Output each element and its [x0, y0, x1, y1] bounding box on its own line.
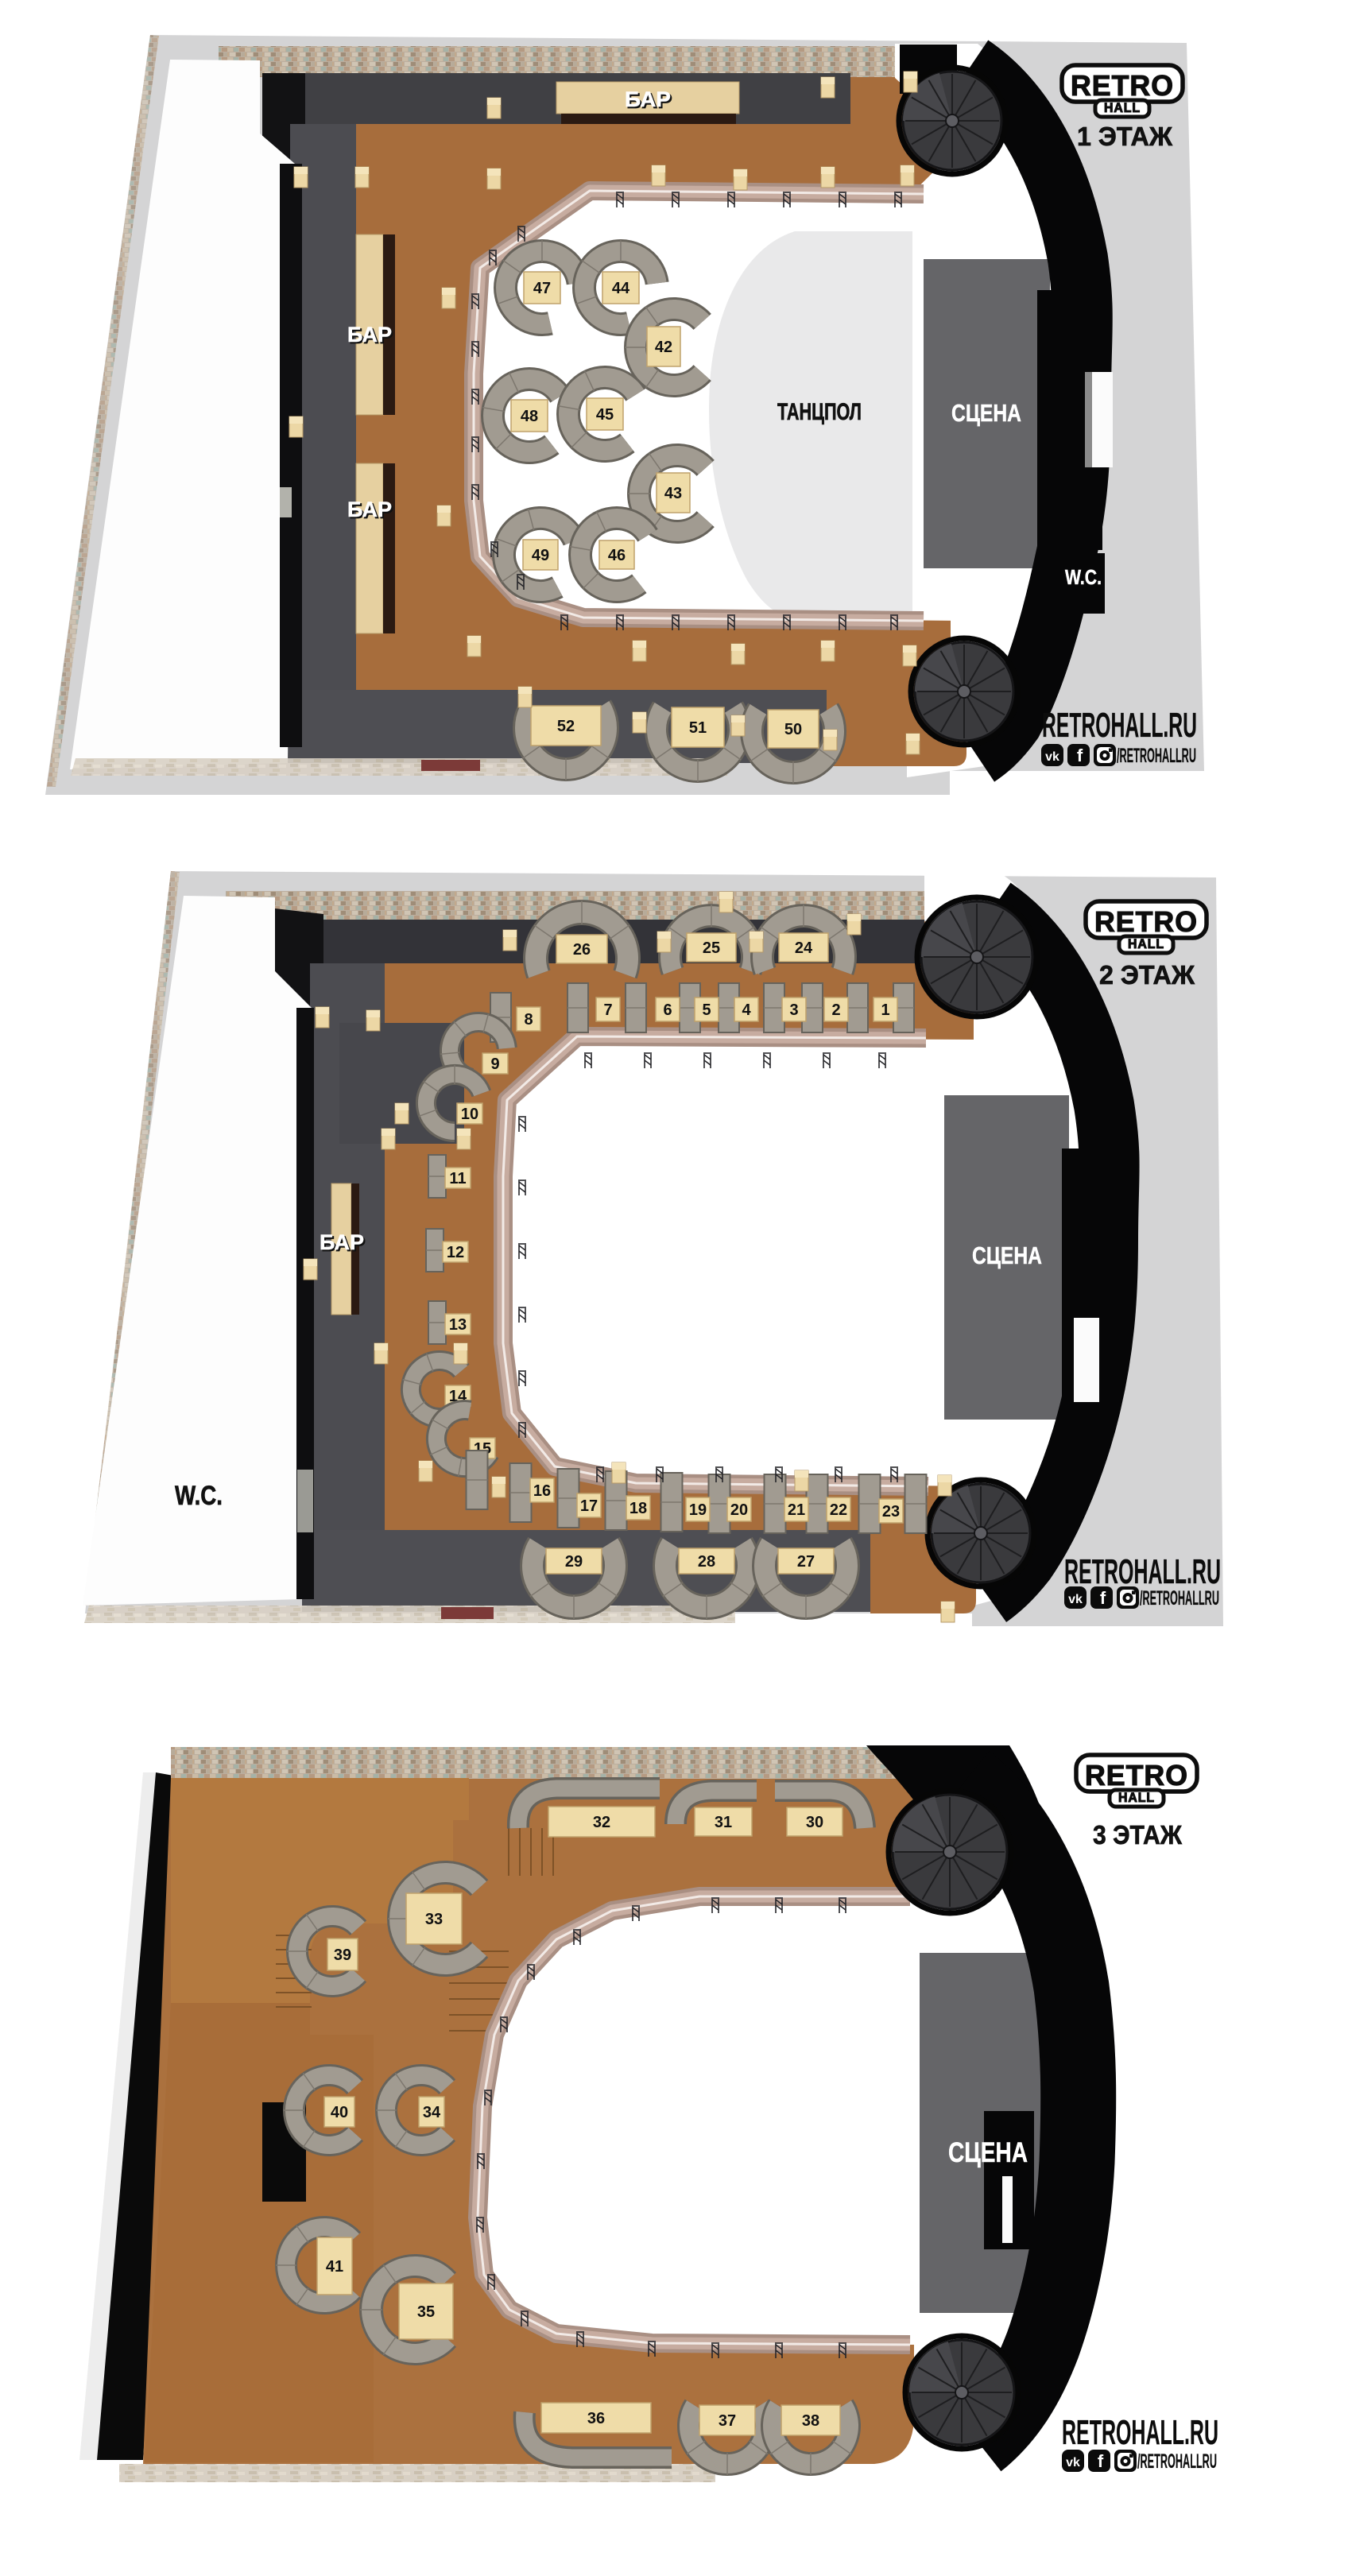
svg-text:27: 27 — [797, 1553, 815, 1571]
svg-text:31: 31 — [715, 1814, 732, 1831]
svg-text:RETROHALL.RU: RETROHALL.RU — [1064, 1552, 1221, 1591]
svg-text:СЦЕНА: СЦЕНА — [948, 2137, 1028, 2168]
svg-text:/RETROHALLRU: /RETROHALLRU — [1140, 1587, 1219, 1610]
svg-text:RETROHALL.RU: RETROHALL.RU — [1042, 706, 1197, 745]
svg-text:2: 2 — [831, 1001, 840, 1019]
svg-text:33: 33 — [425, 1911, 443, 1928]
svg-text:24: 24 — [795, 939, 813, 957]
svg-text:51: 51 — [689, 719, 707, 737]
svg-text:35: 35 — [417, 2303, 435, 2321]
svg-text:39: 39 — [334, 1947, 351, 1964]
svg-text:23: 23 — [882, 1503, 900, 1520]
svg-text:25: 25 — [703, 939, 720, 957]
svg-text:1 ЭТАЖ: 1 ЭТАЖ — [1077, 122, 1172, 151]
svg-text:RETROHALL.RU: RETROHALL.RU — [1062, 2413, 1218, 2452]
svg-text:34: 34 — [423, 2104, 441, 2121]
svg-text:vk: vk — [1068, 1593, 1083, 1606]
svg-text:6: 6 — [663, 1001, 672, 1019]
svg-text:41: 41 — [326, 2258, 343, 2276]
svg-text:3 ЭТАЖ: 3 ЭТАЖ — [1093, 1820, 1182, 1850]
svg-text:W.C.: W.C. — [1065, 565, 1102, 589]
svg-text:СЦЕНА: СЦЕНА — [951, 399, 1021, 427]
svg-text:f: f — [1098, 2451, 1104, 2471]
svg-text:/RETROHALLRU: /RETROHALLRU — [1117, 745, 1196, 767]
svg-text:13: 13 — [449, 1316, 467, 1334]
svg-text:20: 20 — [730, 1501, 748, 1519]
svg-text:RETRO: RETRO — [1085, 1759, 1188, 1792]
svg-text:47: 47 — [533, 280, 551, 297]
svg-text:37: 37 — [719, 2412, 736, 2430]
svg-text:ТАНЦПОЛ: ТАНЦПОЛ — [777, 399, 862, 425]
svg-text:3: 3 — [789, 1001, 798, 1019]
svg-text:8: 8 — [524, 1011, 533, 1028]
svg-text:30: 30 — [806, 1814, 823, 1831]
svg-text:45: 45 — [596, 406, 614, 424]
svg-text:29: 29 — [565, 1553, 583, 1571]
svg-text:БАР: БАР — [320, 1230, 364, 1254]
svg-text:БАР: БАР — [625, 87, 671, 111]
svg-text:5: 5 — [702, 1001, 711, 1019]
svg-text:26: 26 — [573, 941, 591, 959]
svg-text:HALL: HALL — [1104, 100, 1141, 115]
svg-text:RETRO: RETRO — [1071, 69, 1174, 102]
svg-text:/RETROHALLRU: /RETROHALLRU — [1137, 2450, 1217, 2473]
svg-text:16: 16 — [533, 1482, 551, 1500]
svg-text:36: 36 — [587, 2410, 605, 2427]
svg-text:46: 46 — [608, 547, 626, 564]
svg-text:vk: vk — [1045, 750, 1059, 764]
svg-text:f: f — [1077, 746, 1083, 765]
svg-text:52: 52 — [557, 718, 575, 735]
svg-text:38: 38 — [802, 2412, 819, 2430]
svg-text:40: 40 — [331, 2104, 348, 2121]
svg-text:18: 18 — [629, 1500, 647, 1517]
svg-text:42: 42 — [655, 339, 672, 356]
svg-text:RETRO: RETRO — [1094, 905, 1198, 938]
svg-text:СЦЕНА: СЦЕНА — [972, 1242, 1042, 1269]
svg-text:4: 4 — [742, 1001, 751, 1019]
svg-text:БАР: БАР — [347, 498, 392, 521]
svg-text:12: 12 — [447, 1244, 464, 1261]
svg-text:10: 10 — [461, 1106, 478, 1123]
svg-text:2 ЭТАЖ: 2 ЭТАЖ — [1099, 960, 1195, 990]
svg-text:vk: vk — [1066, 2456, 1080, 2469]
svg-text:49: 49 — [532, 547, 549, 564]
svg-text:32: 32 — [593, 1814, 610, 1831]
svg-text:11: 11 — [449, 1170, 466, 1187]
svg-text:HALL: HALL — [1118, 1790, 1155, 1805]
svg-text:21: 21 — [788, 1501, 805, 1519]
svg-text:19: 19 — [689, 1501, 707, 1519]
svg-text:43: 43 — [664, 485, 682, 502]
svg-text:f: f — [1100, 1588, 1106, 1608]
svg-text:7: 7 — [603, 1001, 612, 1019]
svg-text:БАР: БАР — [347, 323, 392, 347]
svg-text:W.C.: W.C. — [175, 1481, 223, 1511]
svg-text:1: 1 — [881, 1001, 889, 1019]
svg-text:28: 28 — [698, 1553, 715, 1571]
svg-text:50: 50 — [784, 721, 802, 738]
svg-text:17: 17 — [580, 1497, 598, 1515]
svg-text:HALL: HALL — [1128, 936, 1164, 951]
svg-text:44: 44 — [612, 280, 630, 297]
svg-text:9: 9 — [490, 1056, 499, 1073]
svg-text:48: 48 — [521, 408, 538, 425]
svg-text:22: 22 — [830, 1501, 847, 1519]
